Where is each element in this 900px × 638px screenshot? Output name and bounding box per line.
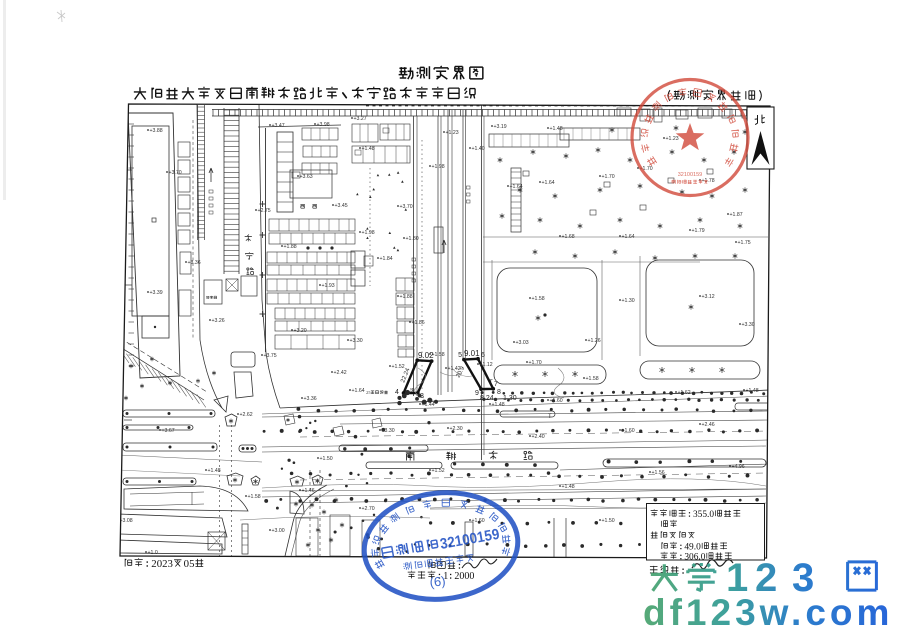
svg-text:+1.52: +1.52: [432, 468, 445, 474]
svg-text:+1.23: +1.23: [666, 136, 679, 142]
svg-text:+1.75: +1.75: [738, 240, 751, 246]
svg-text:+1.88: +1.88: [284, 244, 297, 250]
svg-text:+1.40: +1.40: [472, 146, 485, 152]
svg-text:df123w.com: df123w.com: [643, 592, 893, 633]
svg-text:+3.30: +3.30: [742, 322, 755, 328]
svg-text:4: 4: [395, 389, 399, 396]
svg-text:+3.00: +3.00: [272, 528, 285, 534]
svg-text:+2.46: +2.46: [702, 422, 715, 428]
svg-text:+3.70: +3.70: [400, 204, 413, 210]
svg-text:+3.03: +3.03: [516, 340, 529, 346]
svg-text:25: 25: [366, 390, 371, 395]
svg-text:+3.36: +3.36: [188, 260, 201, 266]
svg-text:+3.45: +3.45: [335, 203, 348, 209]
svg-text:8.24: 8.24: [480, 395, 494, 402]
svg-text:+3.26: +3.26: [212, 318, 225, 324]
svg-text:+3.75: +3.75: [264, 353, 277, 359]
svg-text:8: 8: [497, 389, 501, 396]
svg-text:+3.70: +3.70: [169, 170, 182, 176]
svg-text:9: 9: [475, 390, 479, 397]
svg-text:+1.60: +1.60: [472, 518, 485, 524]
svg-text:+4.96: +4.96: [732, 464, 745, 470]
svg-text:+1.86: +1.86: [412, 320, 425, 326]
svg-text:+1.30: +1.30: [622, 298, 635, 304]
svg-text:05: 05: [184, 558, 195, 570]
svg-text:+1.78: +1.78: [702, 178, 715, 184]
svg-text:+1.60: +1.60: [550, 398, 563, 404]
svg-text:306.0: 306.0: [684, 553, 705, 563]
svg-text:+1.48: +1.48: [492, 402, 505, 408]
svg-text:+3.20: +3.20: [294, 328, 307, 334]
svg-text:5: 5: [458, 352, 462, 359]
svg-text:+1.26: +1.26: [588, 338, 601, 344]
svg-text:+1.64: +1.64: [622, 234, 635, 240]
svg-text:+1.56: +1.56: [652, 470, 665, 476]
svg-text:6: 6: [481, 352, 485, 359]
svg-text:+1.52: +1.52: [392, 364, 405, 370]
svg-text:9.01: 9.01: [464, 349, 480, 358]
svg-text:+3.19: +3.19: [494, 124, 507, 130]
svg-text:+1.58: +1.58: [586, 376, 599, 382]
svg-text:+1.12: +1.12: [480, 362, 493, 368]
svg-text:+3.39: +3.39: [150, 290, 163, 296]
svg-text:+1.44: +1.44: [422, 402, 435, 408]
svg-text:+3.27: +3.27: [354, 116, 367, 122]
svg-text:+1.48: +1.48: [550, 126, 563, 132]
svg-text:+3.30: +3.30: [350, 338, 363, 344]
svg-text:+1.68: +1.68: [562, 234, 575, 240]
svg-text:355.0: 355.0: [693, 510, 714, 520]
svg-text:49.0: 49.0: [684, 543, 701, 553]
svg-text:+2.62: +2.62: [240, 412, 253, 418]
svg-text:+2.40: +2.40: [532, 434, 545, 440]
svg-text:+3.08: +3.08: [120, 518, 133, 524]
svg-text:+1.87: +1.87: [730, 212, 743, 218]
svg-text:+1.64: +1.64: [510, 184, 523, 190]
svg-text:+3.30: +3.30: [382, 428, 395, 434]
svg-text:+1.84: +1.84: [380, 256, 393, 262]
svg-text:+2.30: +2.30: [450, 426, 463, 432]
svg-text:+1.60: +1.60: [622, 428, 635, 434]
svg-text:+3.36: +3.36: [304, 396, 317, 402]
svg-text:+2.75: +2.75: [258, 208, 271, 214]
svg-text:32100159: 32100159: [678, 172, 702, 178]
svg-text:+1.70: +1.70: [602, 174, 615, 180]
svg-text:+1.98: +1.98: [362, 230, 375, 236]
svg-text:+1.50: +1.50: [602, 518, 615, 524]
svg-text:+1.93: +1.93: [322, 283, 335, 289]
svg-text:+1.48: +1.48: [562, 484, 575, 490]
svg-text:2023: 2023: [151, 558, 173, 570]
svg-text:+1.88: +1.88: [400, 294, 413, 300]
svg-text:+1.62: +1.62: [678, 390, 691, 396]
svg-text:+2.70: +2.70: [362, 506, 375, 512]
svg-text:+1.58: +1.58: [532, 296, 545, 302]
svg-text:+3.67: +3.67: [162, 428, 175, 434]
svg-text:+1.23: +1.23: [446, 130, 459, 136]
svg-text:+1.98: +1.98: [432, 164, 445, 170]
svg-text:+1.50: +1.50: [320, 456, 333, 462]
svg-text:+1.0: +1.0: [148, 550, 158, 556]
svg-text:+1.79: +1.79: [692, 228, 705, 234]
svg-text:+1.70: +1.70: [529, 360, 542, 366]
svg-text:+3.63: +3.63: [300, 174, 313, 180]
svg-text:+3.47: +3.47: [272, 123, 285, 129]
svg-text:T: T: [489, 380, 493, 386]
svg-text:+3.12: +3.12: [702, 294, 715, 300]
svg-text:T: T: [548, 414, 552, 420]
svg-text:+1.58: +1.58: [432, 352, 445, 358]
svg-text:+1.48: +1.48: [362, 146, 375, 152]
svg-text:+1.58: +1.58: [248, 494, 261, 500]
svg-text:+3.98: +3.98: [317, 122, 330, 128]
svg-text:+1.80: +1.80: [406, 236, 419, 242]
svg-text:(6): (6): [429, 573, 446, 590]
svg-text:+1.48: +1.48: [746, 388, 759, 394]
svg-text:+2.42: +2.42: [334, 370, 347, 376]
svg-text:+1.64: +1.64: [352, 388, 365, 394]
svg-text:+1.42: +1.42: [448, 366, 461, 372]
svg-text:+1.46: +1.46: [302, 488, 315, 494]
svg-text:+1.64: +1.64: [542, 180, 555, 186]
svg-text:+3.88: +3.88: [150, 128, 163, 134]
svg-text:+1.48: +1.48: [208, 468, 221, 474]
svg-text:2000: 2000: [454, 571, 474, 582]
